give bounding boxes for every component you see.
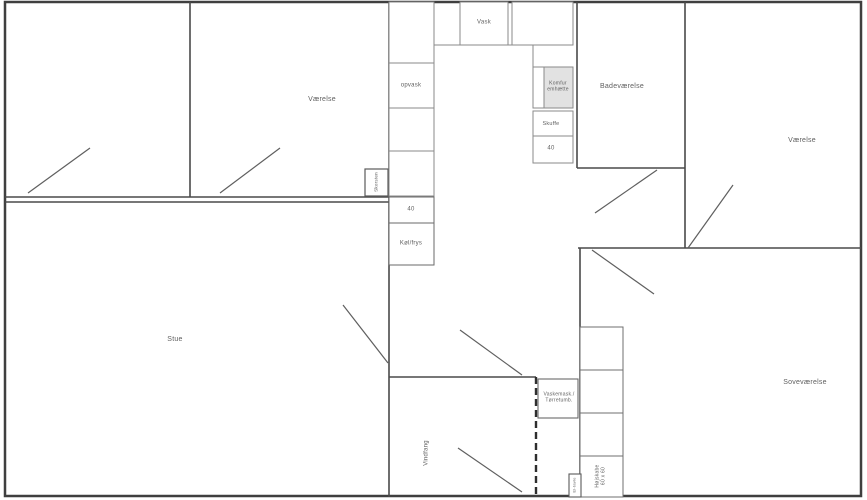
kitchen-cell-blank-4 xyxy=(512,2,573,45)
fixture-label-vaskemask-line2: Tørretumb. xyxy=(544,398,575,404)
fixture-label-vaskemask: Vaskemask./ Tørretumb. xyxy=(544,392,575,404)
floorplan-page: Værelse Værelse Badeværelse Stue Sovevær… xyxy=(0,0,867,500)
fixture-label-hoejskabe: Højskabe 60 x 60 xyxy=(595,464,607,487)
kitchen-label-komfur: Komfur emhætte xyxy=(547,81,568,93)
kitchen-label-vask: Vask xyxy=(477,20,491,27)
kitchen-label-koelfrys: Køl/frys xyxy=(400,241,422,248)
room-label-stue: Stue xyxy=(167,336,182,344)
kitchen-cell-blank-3 xyxy=(389,151,434,196)
room-label-sovevaerelse: Soveværelse xyxy=(783,379,827,387)
floorplan-drawing xyxy=(0,0,867,500)
kitchen-label-opvask: opvask xyxy=(401,83,422,90)
kitchen-label-40-left: 40 xyxy=(407,207,414,214)
kitchen-label-40-right: 40 xyxy=(547,146,554,153)
fixture-label-el-tavle: El-tavle xyxy=(573,477,578,492)
room-label-badevaerelse: Badeværelse xyxy=(600,83,644,91)
fixture-label-hoejskabe-line2: 60 x 60 xyxy=(601,464,607,487)
kitchen-left-column xyxy=(389,2,434,265)
kitchen-cell-blank-1 xyxy=(389,2,434,63)
room-label-vaerelse-left: Værelse xyxy=(308,96,336,104)
kitchen-cell-blank-2 xyxy=(389,108,434,151)
fixture-label-skorsten: Skorsten xyxy=(373,172,378,192)
cabinet-cell-3 xyxy=(580,413,623,456)
cabinet-cell-1 xyxy=(580,327,623,370)
room-label-vindfang: Vindfang xyxy=(424,440,431,466)
cabinet-cell-2 xyxy=(580,370,623,413)
kitchen-label-skuffe: Skuffe xyxy=(543,121,560,127)
room-label-vaerelse-right: Værelse xyxy=(788,137,816,145)
kitchen-label-komfur-line2: emhætte xyxy=(547,87,568,93)
